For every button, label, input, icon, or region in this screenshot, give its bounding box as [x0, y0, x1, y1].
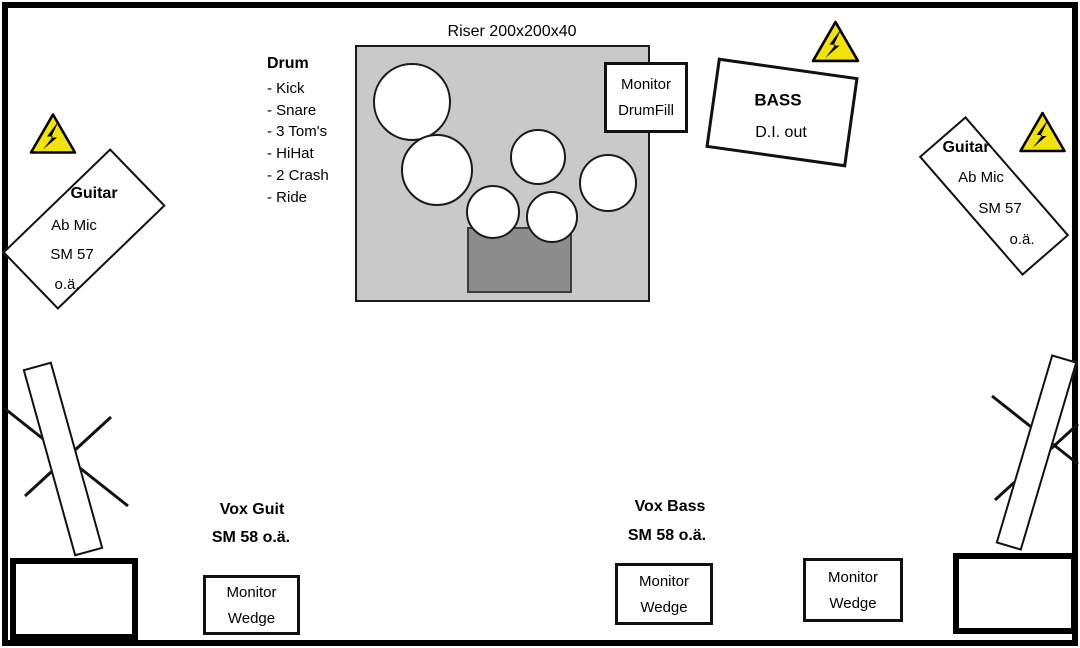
- guitar-right-mic-alt: o.ä.: [1009, 232, 1034, 249]
- power-warning-icon: [809, 19, 862, 64]
- guitar-left-mic-type: Ab Mic: [51, 218, 97, 235]
- monitor-wedge-right: Monitor Wedge: [803, 558, 903, 622]
- power-warning-icon: [1017, 110, 1068, 154]
- bass-label: BASS: [754, 92, 801, 111]
- guitar-right-name: Guitar: [942, 139, 989, 157]
- power-warning-icon: [28, 111, 78, 156]
- monitor-drumfill-line1: Monitor: [621, 76, 671, 93]
- monitor-wedge-center: Monitor Wedge: [615, 563, 713, 625]
- guitar-left-mic-model: SM 57: [50, 247, 93, 264]
- monitor-wedge-line2: Wedge: [640, 599, 687, 616]
- vox-bass-mic-label: SM 58 o.ä.: [628, 527, 706, 545]
- monitor-wedge-left: Monitor Wedge: [203, 575, 300, 635]
- drum-legend-item: - 2 Crash: [267, 165, 329, 187]
- monitor-drumfill-line2: DrumFill: [618, 102, 674, 119]
- guitar-left-name: Guitar: [70, 185, 117, 203]
- vox-bass-label: Vox Bass: [635, 498, 706, 516]
- guitar-left-mic-alt: o.ä.: [54, 277, 79, 294]
- vox-guit-mic-label: SM 58 o.ä.: [212, 529, 290, 547]
- stage-plot: Riser 200x200x40 Drum - Kick - Snare - 3…: [0, 0, 1080, 648]
- drum-legend: Drum - Kick - Snare - 3 Tom's - HiHat - …: [267, 55, 329, 208]
- monitor-wedge-line1: Monitor: [639, 573, 689, 590]
- monitor-drumfill-box: Monitor DrumFill: [604, 62, 688, 133]
- drum-legend-item: - Kick: [267, 78, 329, 100]
- bass-di-label: D.I. out: [755, 124, 807, 142]
- drum-legend-item: - 3 Tom's: [267, 121, 329, 143]
- monitor-wedge-line2: Wedge: [829, 595, 876, 612]
- riser-label: Riser 200x200x40: [448, 23, 577, 41]
- drum-legend-title: Drum: [267, 55, 329, 73]
- guitar-right-mic-model: SM 57: [978, 201, 1021, 218]
- drum-legend-item: - Ride: [267, 187, 329, 209]
- bass-box: [705, 58, 858, 168]
- guitar-right-mic-type: Ab Mic: [958, 170, 1004, 187]
- drum-legend-item: - Snare: [267, 100, 329, 122]
- monitor-wedge-line1: Monitor: [828, 569, 878, 586]
- monitor-wedge-line2: Wedge: [228, 610, 275, 627]
- vox-guit-label: Vox Guit: [220, 501, 285, 519]
- pa-speaker-box-right: [953, 553, 1077, 634]
- pa-speaker-box-left: [10, 558, 138, 640]
- stand-cross-lines: [0, 0, 1080, 648]
- monitor-wedge-line1: Monitor: [226, 584, 276, 601]
- drum-legend-item: - HiHat: [267, 143, 329, 165]
